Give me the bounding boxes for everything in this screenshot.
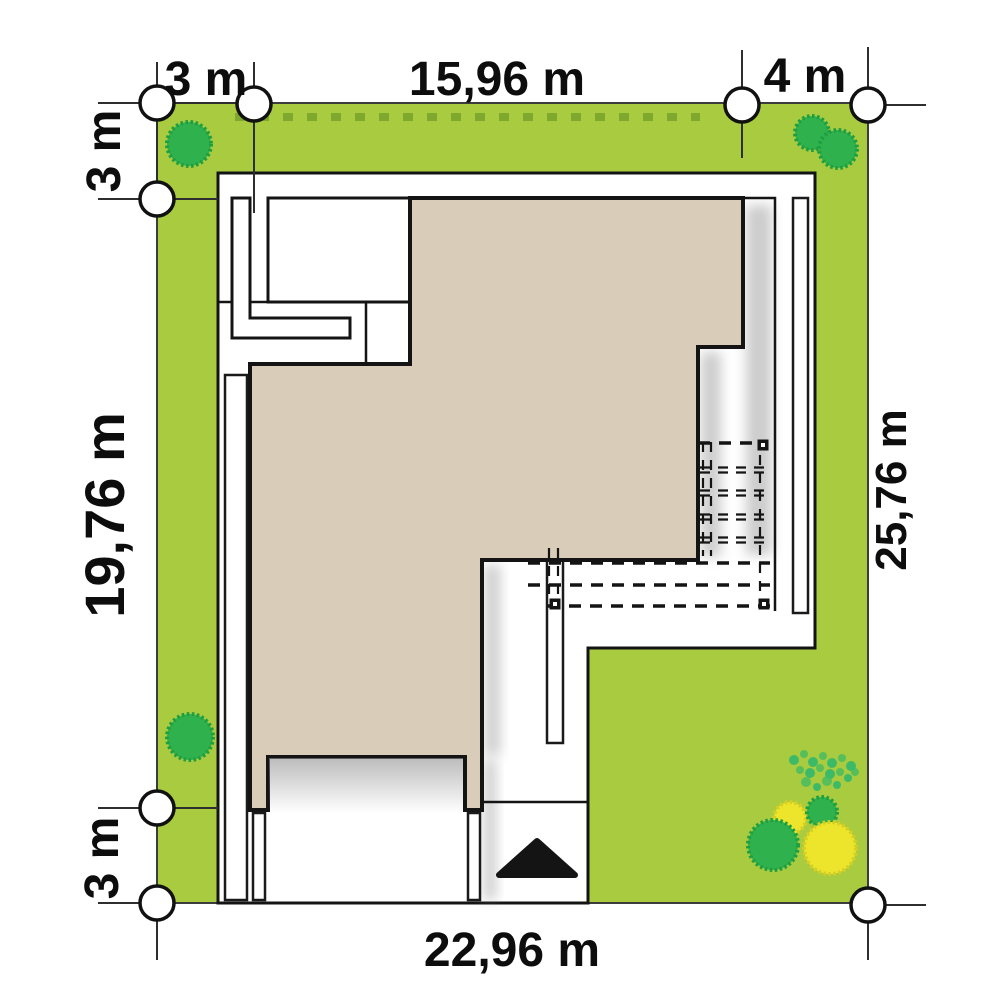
tree	[167, 122, 211, 166]
garage-jamb-left	[253, 813, 265, 900]
garage-shadow	[269, 758, 463, 813]
dim-top-offset-left: 3 m	[165, 53, 248, 106]
dim-bottom-width: 22,96 m	[424, 924, 600, 977]
dim-right-height: 25,76 m	[867, 409, 916, 570]
dim-left-height: 19,76 m	[73, 412, 136, 618]
dimension-point	[851, 88, 885, 122]
pergola-post	[758, 440, 769, 451]
tree	[167, 714, 213, 760]
pergola-post	[550, 599, 561, 610]
site-plan-page: 3 m 15,96 m 4 m 3 m 19,76 m 25,76 m 3 m …	[0, 0, 1000, 1008]
dimension-point	[851, 888, 885, 922]
carport-rect	[268, 198, 410, 302]
pergola-post	[759, 599, 770, 610]
dimension-point	[725, 88, 759, 122]
dim-top-width: 15,96 m	[409, 53, 585, 106]
garage-jamb-right	[468, 813, 480, 900]
side-wall-strip-right	[793, 198, 808, 613]
dim-left-offset-top: 3 m	[78, 110, 131, 193]
shrub-yellow	[804, 822, 856, 874]
tree	[819, 130, 857, 168]
dimension-point	[140, 182, 174, 216]
dimension-point	[140, 791, 174, 825]
site-plan: 3 m 15,96 m 4 m 3 m 19,76 m 25,76 m 3 m …	[0, 0, 1000, 1008]
dimension-point	[140, 886, 174, 920]
dim-top-offset-right: 4 m	[764, 50, 847, 103]
side-wall-strip-left	[225, 375, 247, 900]
dim-left-offset-bottom: 3 m	[76, 817, 129, 900]
tree	[748, 820, 798, 870]
